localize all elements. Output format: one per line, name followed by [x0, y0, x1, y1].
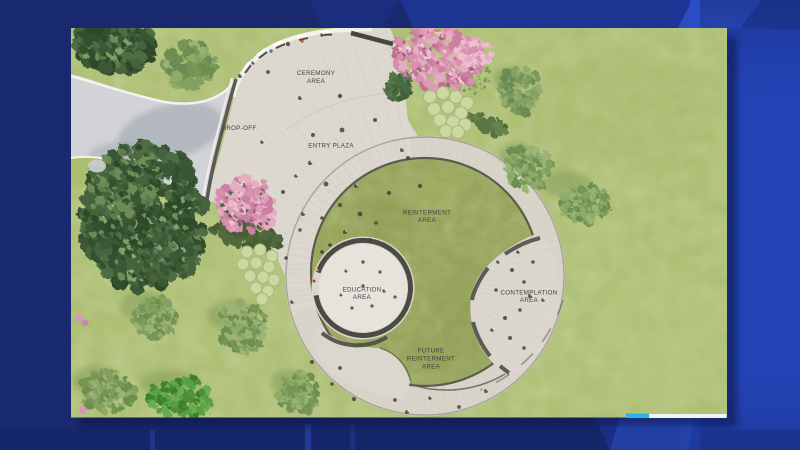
svg-text:DROP-OFF: DROP-OFF: [222, 125, 257, 132]
svg-text:AREA: AREA: [353, 294, 372, 301]
svg-text:AREA: AREA: [520, 297, 539, 304]
svg-text:AREA: AREA: [422, 364, 441, 371]
svg-text:EDUCATION: EDUCATION: [343, 287, 382, 294]
svg-text:REINTERMENT: REINTERMENT: [403, 210, 451, 217]
svg-text:AREA: AREA: [418, 217, 437, 224]
svg-text:CEREMONY: CEREMONY: [297, 70, 335, 77]
svg-text:AREA: AREA: [307, 78, 326, 85]
svg-text:FUTURE: FUTURE: [417, 348, 444, 355]
svg-text:REINTERMENT: REINTERMENT: [407, 356, 455, 363]
svg-text:ENTRY PLAZA: ENTRY PLAZA: [308, 143, 354, 150]
svg-text:CONTEMPLATION: CONTEMPLATION: [501, 290, 558, 297]
